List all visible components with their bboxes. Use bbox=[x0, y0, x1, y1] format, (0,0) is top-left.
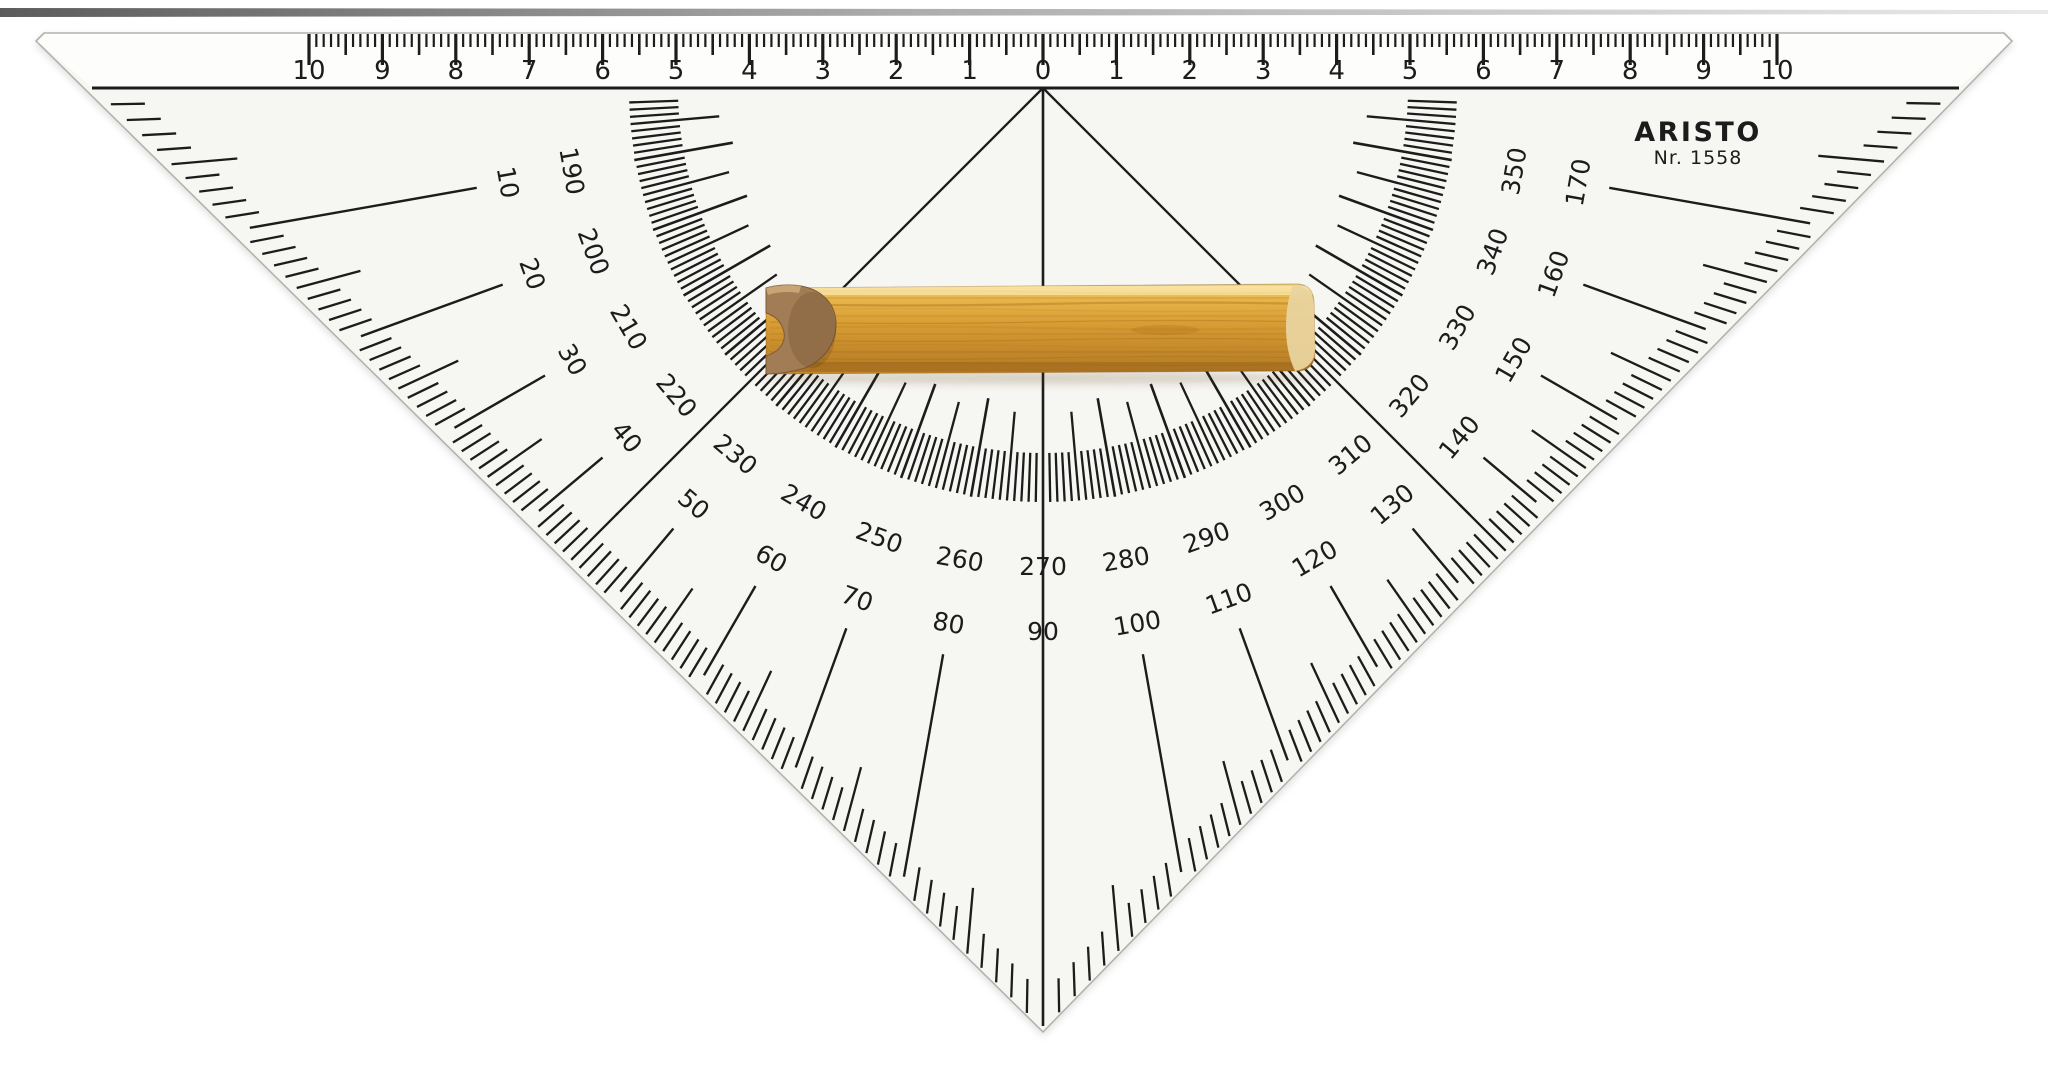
brand-model: Nr. 1558 bbox=[1654, 147, 1743, 169]
ruler-number: 6 bbox=[594, 56, 611, 86]
photo-edge-artifact bbox=[0, 8, 2048, 17]
ruler-number: 1 bbox=[961, 56, 978, 86]
degree-label: 270 bbox=[1019, 552, 1067, 581]
ruler-number: 10 bbox=[292, 56, 325, 86]
ruler-number: 9 bbox=[374, 56, 391, 86]
ruler-number: 2 bbox=[888, 56, 905, 86]
ruler-number: 3 bbox=[1255, 56, 1272, 86]
ruler-number: 4 bbox=[741, 56, 758, 86]
ruler-number: 5 bbox=[1402, 56, 1419, 86]
photo-stage: 10987654321012345678910 1902002102202302… bbox=[0, 0, 2048, 1091]
triangle-body bbox=[36, 33, 2012, 1032]
degree-label: 80 bbox=[930, 606, 966, 640]
ruler-number: 9 bbox=[1695, 56, 1712, 86]
ruler-number: 4 bbox=[1328, 56, 1345, 86]
ruler-number: 7 bbox=[1549, 56, 1566, 86]
ruler-number: 5 bbox=[668, 56, 685, 86]
ruler-number: 10 bbox=[1760, 56, 1793, 86]
degree-label: 90 bbox=[1027, 617, 1059, 646]
ruler-number: 1 bbox=[1108, 56, 1125, 86]
ruler-number: 6 bbox=[1475, 56, 1492, 86]
wooden-handle bbox=[762, 284, 1318, 384]
ruler-number: 2 bbox=[1182, 56, 1199, 86]
degree-label: 10 bbox=[491, 164, 525, 200]
ruler-number: 3 bbox=[815, 56, 832, 86]
brand-name: ARISTO bbox=[1634, 117, 1762, 148]
ruler-number: 7 bbox=[521, 56, 538, 86]
ruler-number: 0 bbox=[1035, 56, 1052, 86]
protractor-triangle-photo: 10987654321012345678910 1902002102202302… bbox=[0, 0, 2048, 1091]
ruler-number: 8 bbox=[448, 56, 465, 86]
ruler-number: 8 bbox=[1622, 56, 1639, 86]
handle-end-grain-face bbox=[1286, 285, 1315, 371]
